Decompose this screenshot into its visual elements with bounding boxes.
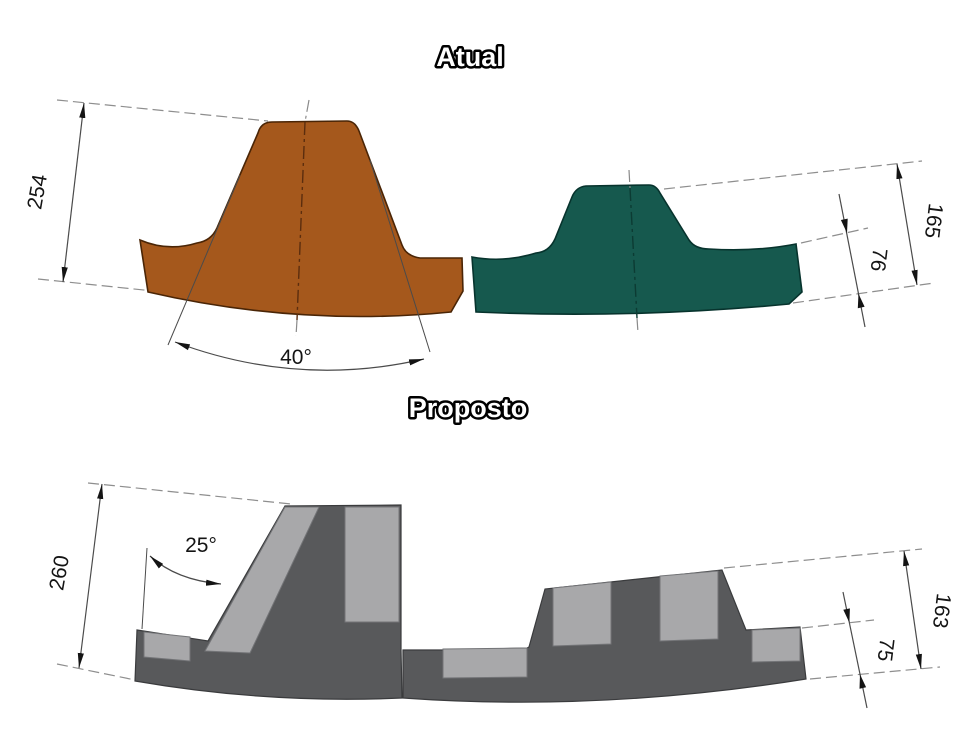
atual-right-liner (472, 185, 802, 314)
dim-254-label: 254 (23, 172, 52, 211)
extension-line (802, 620, 874, 628)
drawing-canvas: Atual 254 40° 165 76 (0, 0, 980, 740)
extension-line (724, 549, 922, 568)
angle-25-label: 25° (185, 534, 217, 557)
dim-254-line (63, 103, 84, 282)
extension-line (57, 664, 140, 681)
extension-line (664, 161, 922, 189)
proposto-title: Proposto (409, 393, 528, 423)
dimension-arrow (841, 219, 848, 233)
dim-165-label: 165 (920, 202, 947, 240)
dim-260-label: 260 (45, 554, 74, 593)
extension-line (88, 483, 291, 504)
angle-25-ref-line (142, 548, 147, 629)
proposto-small-lifter-insert-a (553, 582, 611, 646)
extension-line (801, 228, 868, 243)
atual-section: Atual 254 40° 165 76 (23, 42, 947, 370)
angle-40-label: 40° (280, 346, 312, 369)
dimension-arrow (843, 608, 850, 622)
dim-163-line (904, 551, 921, 669)
proposto-lifter-top-insert (345, 507, 399, 622)
dim-260-line (79, 484, 102, 668)
proposto-small-lifter-insert-b (660, 571, 718, 641)
dimension-arrow (858, 294, 865, 308)
atual-title: Atual (436, 42, 504, 72)
proposto-base-insert-right (752, 628, 800, 662)
centerline (305, 100, 309, 122)
centerline (637, 318, 638, 333)
dim-163-label: 163 (928, 592, 955, 630)
liner-profile-drawing: Atual 254 40° 165 76 (0, 0, 980, 740)
extension-line (57, 100, 268, 121)
dimension-arrow (860, 674, 867, 688)
extension-line (793, 283, 934, 303)
centerline (296, 320, 297, 336)
proposto-valley-insert (443, 648, 527, 678)
angle-25-arc (150, 556, 221, 584)
dim-76-label: 76 (866, 247, 892, 273)
dim-165-line (897, 164, 917, 285)
dim-75-label: 75 (873, 637, 899, 663)
proposto-section: Proposto 260 25° 163 75 (45, 393, 955, 708)
proposto-base-insert-left (144, 632, 190, 661)
